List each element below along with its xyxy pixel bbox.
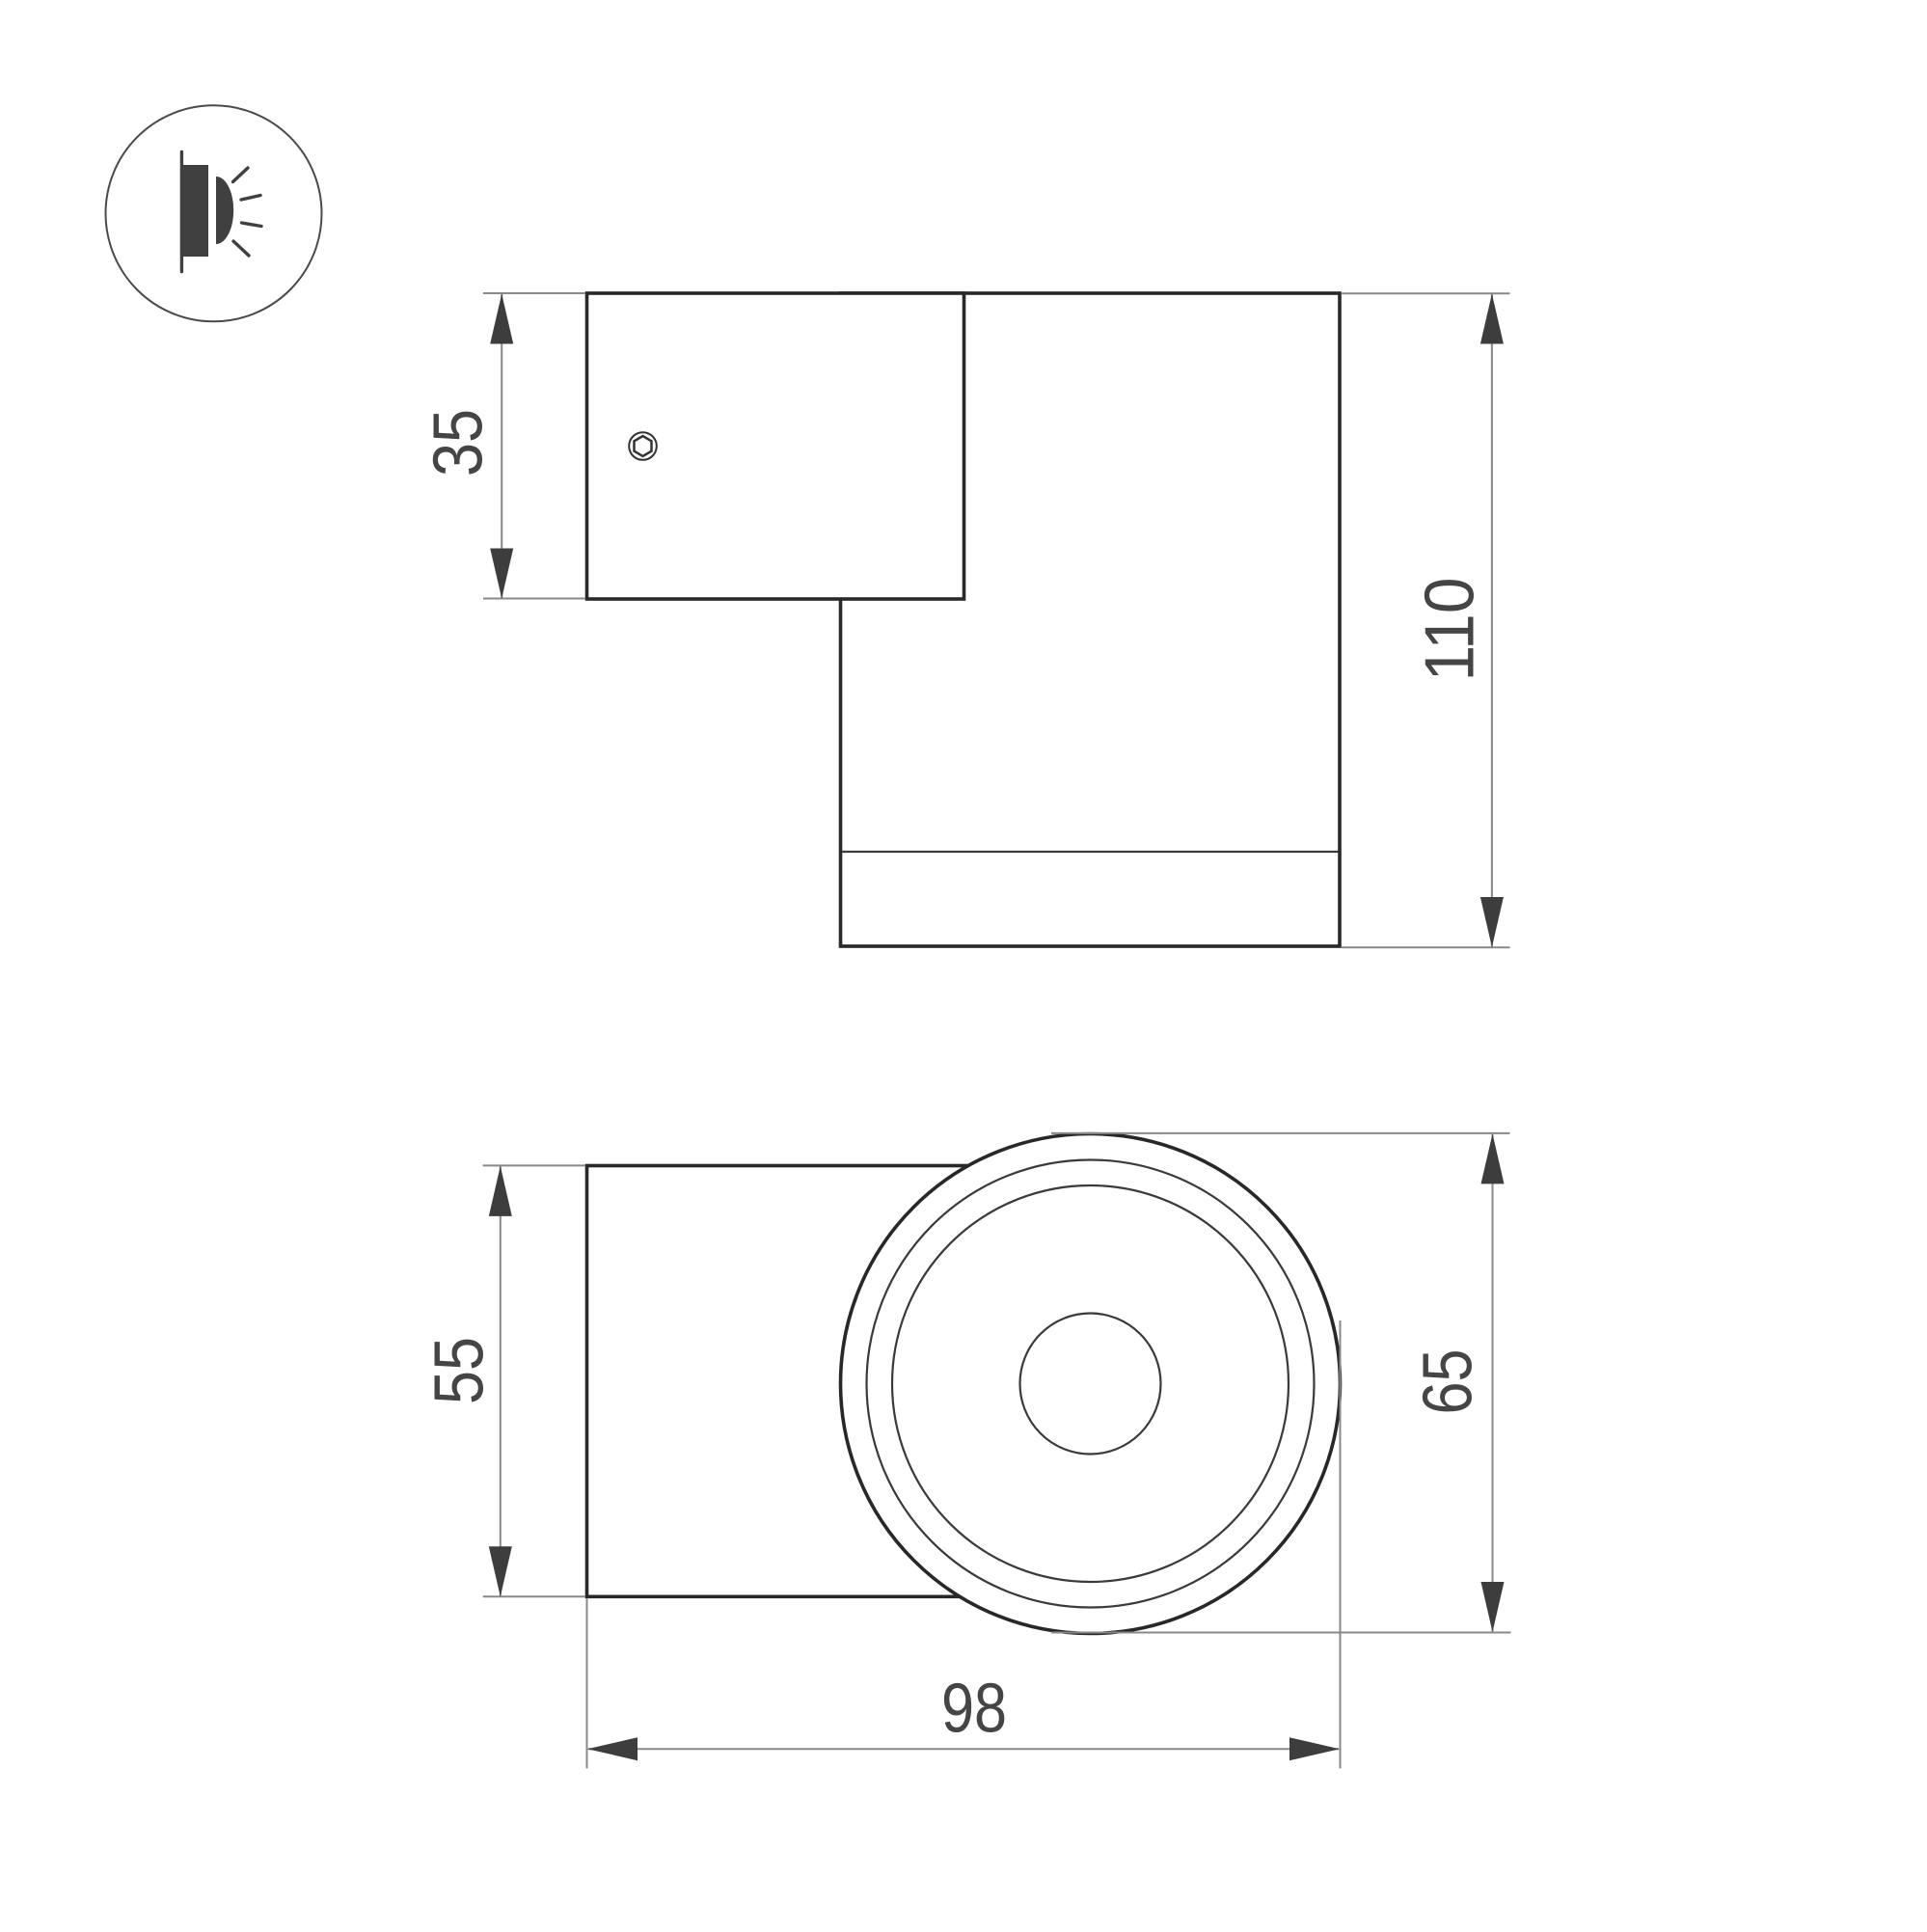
svg-text:55: 55 bbox=[421, 1337, 498, 1404]
svg-text:98: 98 bbox=[941, 1670, 1007, 1747]
svg-text:65: 65 bbox=[1410, 1349, 1487, 1415]
svg-text:35: 35 bbox=[421, 409, 498, 476]
svg-text:110: 110 bbox=[1412, 578, 1489, 682]
